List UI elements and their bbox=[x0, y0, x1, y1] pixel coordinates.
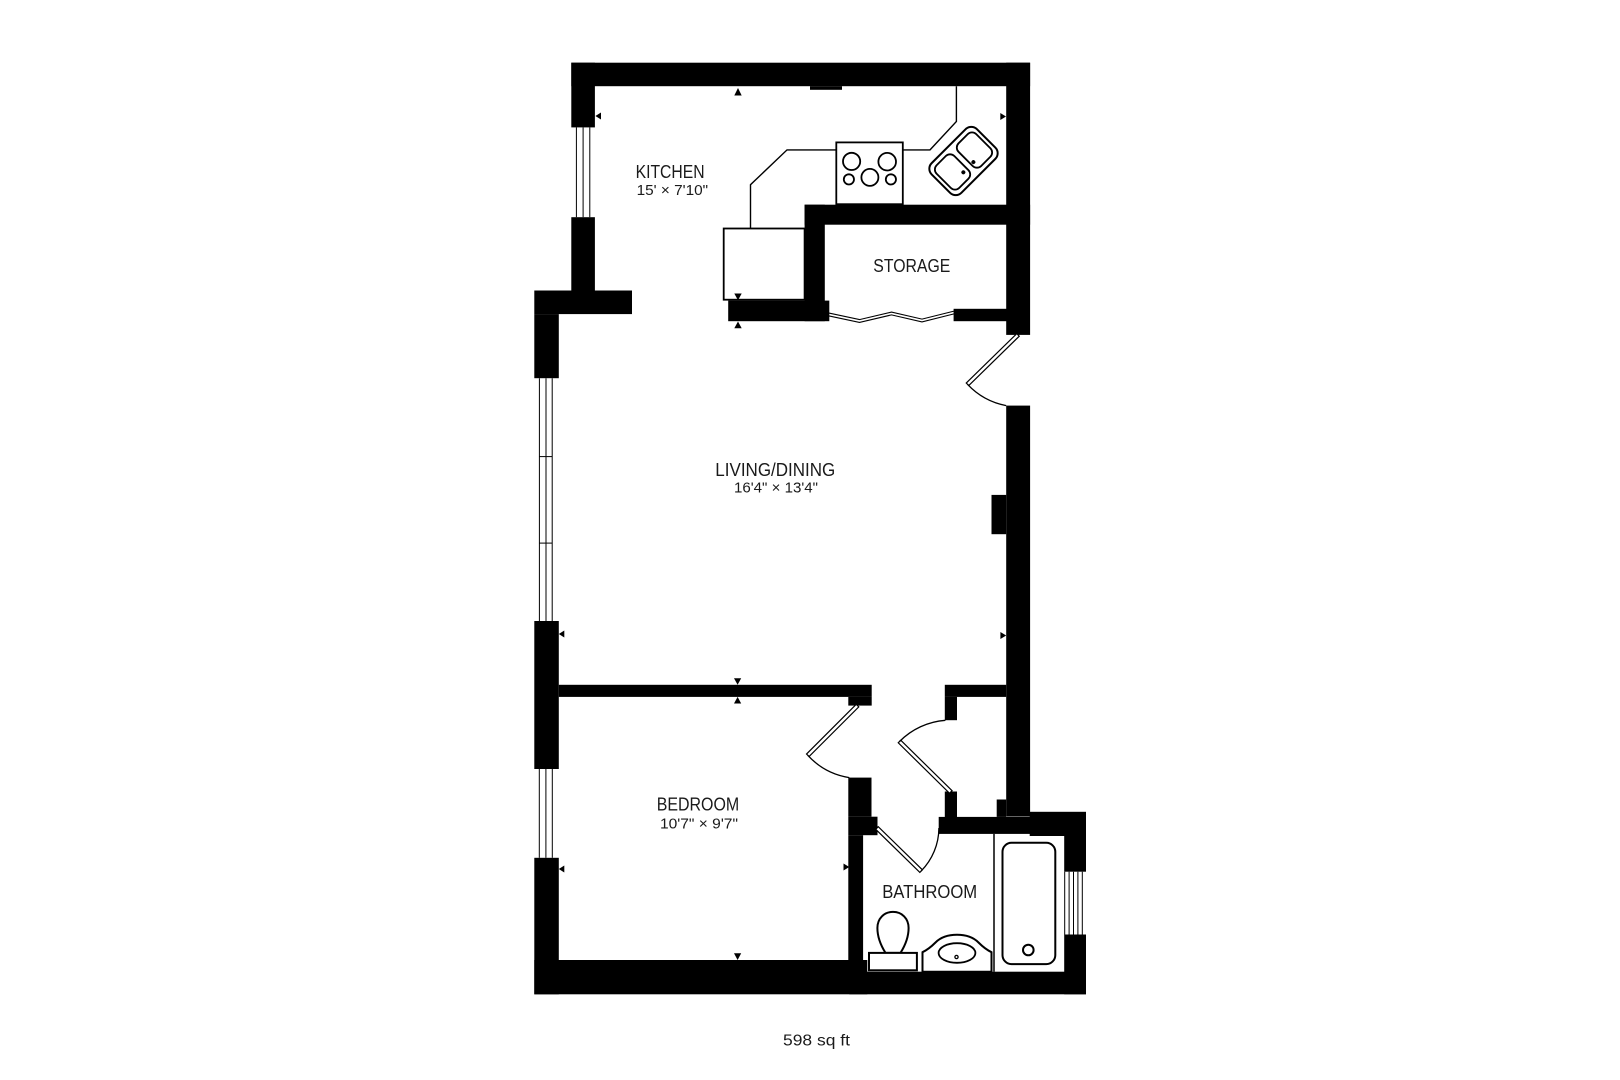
svg-text:15' × 7'10": 15' × 7'10" bbox=[637, 183, 709, 199]
svg-text:BATHROOM: BATHROOM bbox=[882, 882, 977, 902]
svg-text:KITCHEN: KITCHEN bbox=[636, 162, 705, 182]
svg-text:BEDROOM: BEDROOM bbox=[657, 795, 740, 815]
svg-text:LIVING/DINING: LIVING/DINING bbox=[715, 460, 835, 480]
svg-text:598 sq ft: 598 sq ft bbox=[783, 1033, 851, 1050]
svg-text:10'7" × 9'7": 10'7" × 9'7" bbox=[660, 817, 738, 833]
svg-text:STORAGE: STORAGE bbox=[873, 256, 950, 276]
svg-text:16'4" × 13'4": 16'4" × 13'4" bbox=[734, 481, 818, 497]
